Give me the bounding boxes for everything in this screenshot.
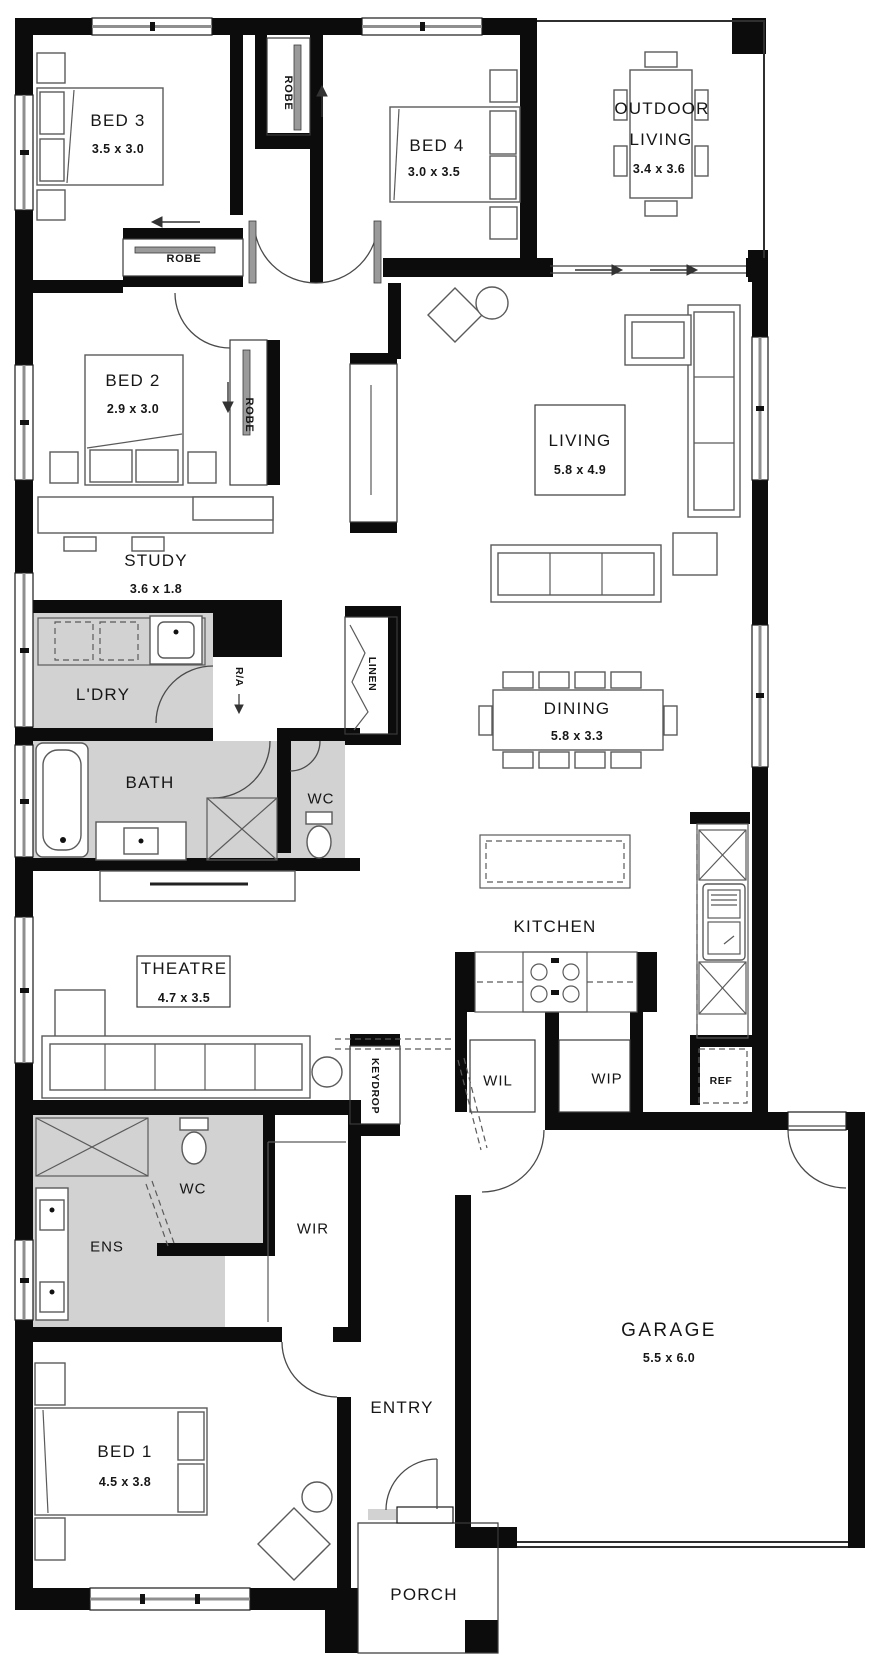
room-label-porch: PORCH — [390, 1585, 457, 1605]
room-label-robe-bed2: ROBE — [243, 398, 255, 433]
room-dims-garage: 5.5 x 6.0 — [643, 1351, 695, 1365]
room-label-ens: ENS — [90, 1239, 124, 1256]
room-label-wc-ens: WC — [180, 1181, 207, 1198]
room-dims-dining: 5.8 x 3.3 — [551, 729, 603, 743]
room-label-laundry: L'DRY — [76, 685, 130, 705]
room-dims-theatre: 4.7 x 3.5 — [158, 991, 210, 1005]
room-dims-bed1: 4.5 x 3.8 — [99, 1475, 151, 1489]
room-label-bed1: BED 1 — [97, 1442, 152, 1462]
room-label-study: STUDY — [124, 551, 188, 571]
room-label-ref: REF — [710, 1075, 733, 1087]
entry-plant — [258, 1482, 332, 1580]
room-label-bed3: BED 3 — [90, 111, 145, 131]
room-label-wc-main: WC — [308, 791, 335, 808]
room-dims-study: 3.6 x 1.8 — [130, 582, 182, 596]
room-label-kitchen: KITCHEN — [513, 917, 596, 937]
room-label-linen: LINEN — [366, 657, 378, 692]
room-label-dining: DINING — [544, 699, 611, 719]
room-label-outdoor-living-1: OUTDOOR — [614, 99, 709, 119]
room-dims-bed4: 3.0 x 3.5 — [408, 165, 460, 179]
floorplan-drawing — [0, 0, 887, 1674]
room-dims-living: 5.8 x 4.9 — [554, 463, 606, 477]
room-label-outdoor-living-2: LIVING — [630, 130, 693, 150]
bed3-furniture — [37, 53, 163, 220]
room-label-wir: WIR — [297, 1221, 329, 1238]
room-label-living: LIVING — [549, 431, 612, 451]
room-label-bath: BATH — [126, 773, 175, 793]
room-label-theatre: THEATRE — [141, 959, 227, 979]
room-label-garage: GARAGE — [621, 1320, 717, 1342]
room-label-return-air: R/A — [233, 667, 245, 687]
dining-furniture — [479, 672, 677, 768]
theatre-furniture — [42, 871, 342, 1098]
floor-plan: BED 3 3.5 x 3.0 ROBE BED 4 3.0 x 3.5 OUT… — [0, 0, 887, 1674]
room-dims-outdoor-living: 3.4 x 3.6 — [633, 162, 685, 176]
room-dims-bed3: 3.5 x 3.0 — [92, 142, 144, 156]
room-label-bed4: BED 4 — [409, 136, 464, 156]
room-label-wil: WIL — [483, 1073, 513, 1090]
appliance-tower — [697, 824, 748, 1103]
room-label-keydrop: KEYDROP — [369, 1058, 381, 1114]
study-desk — [38, 497, 273, 551]
room-label-bed2: BED 2 — [105, 371, 160, 391]
room-label-robe-top: ROBE — [282, 76, 294, 111]
room-label-robe-bed3: ROBE — [167, 253, 202, 265]
room-label-wip: WIP — [591, 1071, 622, 1088]
room-label-entry: ENTRY — [370, 1398, 433, 1418]
room-dims-bed2: 2.9 x 3.0 — [107, 402, 159, 416]
